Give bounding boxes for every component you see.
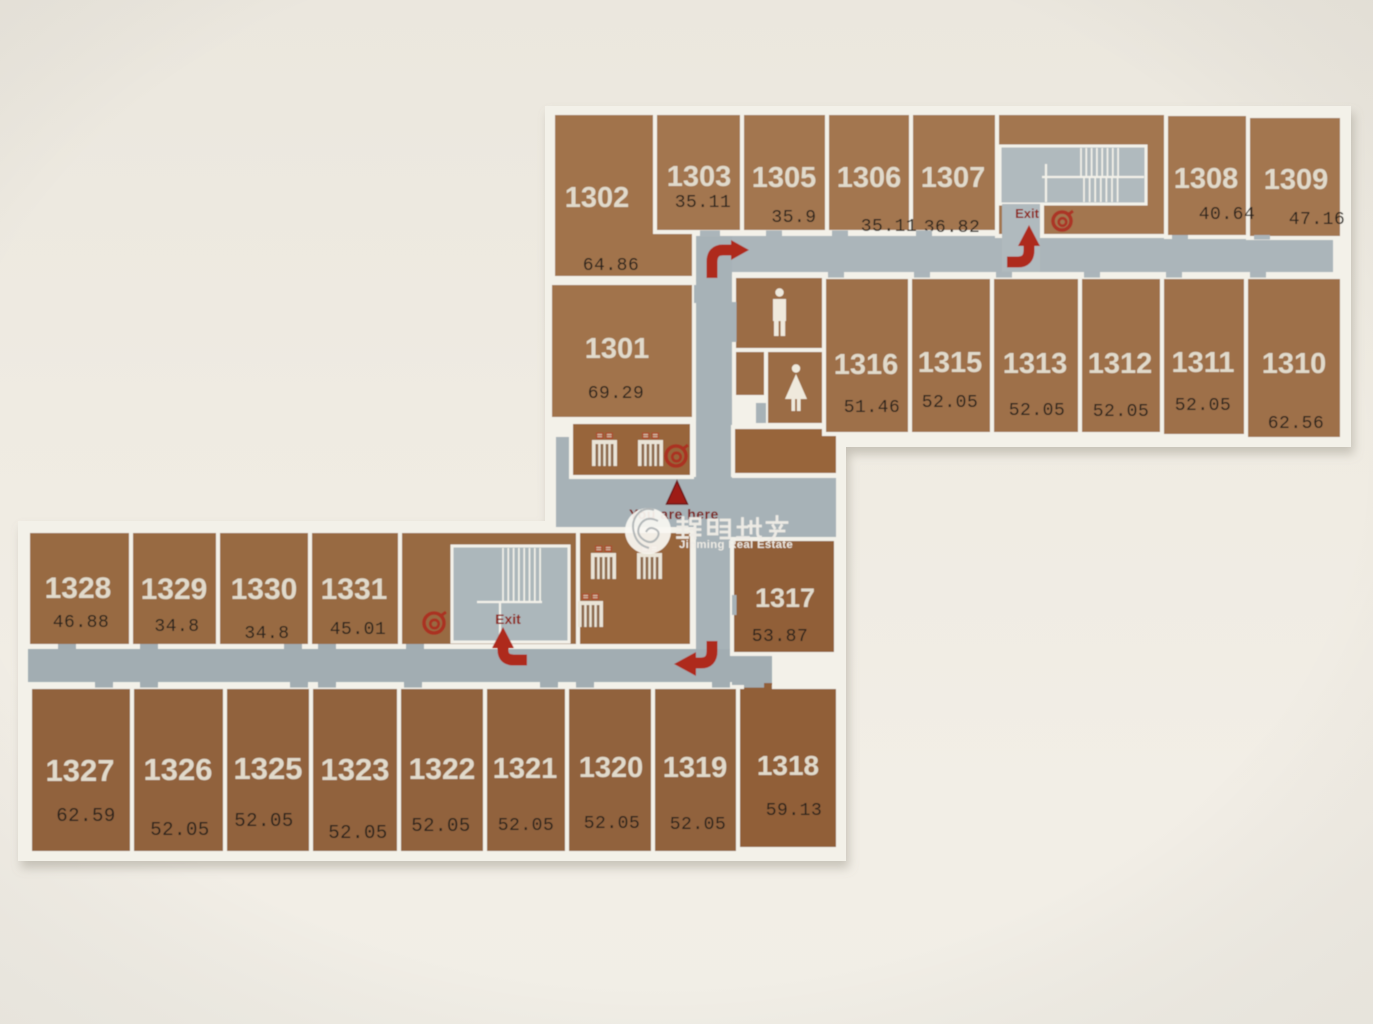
svg-text:46.88: 46.88 <box>53 613 110 633</box>
svg-text:69.29: 69.29 <box>588 384 645 404</box>
svg-text:1308: 1308 <box>1174 163 1239 195</box>
svg-text:1327: 1327 <box>46 753 115 788</box>
svg-text:1322: 1322 <box>409 753 476 786</box>
svg-text:34.8: 34.8 <box>244 624 289 644</box>
svg-text:52.05: 52.05 <box>498 816 555 836</box>
svg-text:34.8: 34.8 <box>154 617 199 637</box>
svg-text:1315: 1315 <box>918 347 983 379</box>
svg-text:51.46: 51.46 <box>844 398 901 418</box>
svg-text:62.56: 62.56 <box>1268 414 1325 434</box>
svg-text:1301: 1301 <box>585 333 650 365</box>
svg-text:35.11: 35.11 <box>675 193 732 213</box>
svg-text:1310: 1310 <box>1262 348 1327 380</box>
svg-text:52.05: 52.05 <box>1093 402 1150 422</box>
svg-text:62.59: 62.59 <box>56 805 116 827</box>
svg-text:1325: 1325 <box>234 751 303 786</box>
svg-text:1321: 1321 <box>493 753 558 785</box>
svg-text:1303: 1303 <box>667 161 732 193</box>
svg-text:1302: 1302 <box>565 182 630 214</box>
svg-text:52.05: 52.05 <box>584 814 641 834</box>
svg-text:40.64: 40.64 <box>1199 205 1256 225</box>
svg-text:1317: 1317 <box>755 583 815 613</box>
svg-text:1307: 1307 <box>921 162 986 194</box>
svg-text:1320: 1320 <box>579 752 644 784</box>
svg-text:1323: 1323 <box>321 752 390 787</box>
svg-text:59.13: 59.13 <box>766 801 823 821</box>
svg-text:35.11: 35.11 <box>861 217 918 237</box>
svg-text:1318: 1318 <box>757 750 819 781</box>
svg-text:45.01: 45.01 <box>330 620 387 640</box>
svg-text:1316: 1316 <box>834 349 899 381</box>
svg-text:Exit: Exit <box>495 611 521 627</box>
svg-text:1313: 1313 <box>1003 348 1068 380</box>
svg-text:52.05: 52.05 <box>922 393 979 413</box>
svg-text:1331: 1331 <box>321 573 388 606</box>
svg-text:47.16: 47.16 <box>1289 210 1346 230</box>
svg-text:64.86: 64.86 <box>583 256 640 276</box>
svg-text:1329: 1329 <box>141 573 208 606</box>
svg-text:1328: 1328 <box>45 572 112 605</box>
svg-text:52.05: 52.05 <box>1175 396 1232 416</box>
svg-text:52.05: 52.05 <box>328 822 388 844</box>
svg-text:1311: 1311 <box>1172 347 1235 379</box>
svg-text:53.87: 53.87 <box>752 627 809 647</box>
svg-text:52.05: 52.05 <box>234 810 294 832</box>
svg-text:1330: 1330 <box>231 573 298 606</box>
svg-text:Jinming Real Estate: Jinming Real Estate <box>679 539 793 551</box>
svg-text:1309: 1309 <box>1264 164 1329 196</box>
svg-text:35.9: 35.9 <box>771 208 816 228</box>
svg-text:1312: 1312 <box>1088 348 1153 380</box>
svg-text:1319: 1319 <box>663 752 728 784</box>
svg-text:52.05: 52.05 <box>411 815 471 837</box>
svg-text:Exit: Exit <box>1015 206 1040 221</box>
svg-text:1306: 1306 <box>837 162 902 194</box>
svg-text:52.05: 52.05 <box>1009 401 1066 421</box>
svg-text:52.05: 52.05 <box>670 815 727 835</box>
svg-text:52.05: 52.05 <box>150 819 210 841</box>
svg-text:36.82: 36.82 <box>924 218 981 238</box>
svg-text:1305: 1305 <box>752 162 817 194</box>
svg-text:1326: 1326 <box>144 752 213 787</box>
